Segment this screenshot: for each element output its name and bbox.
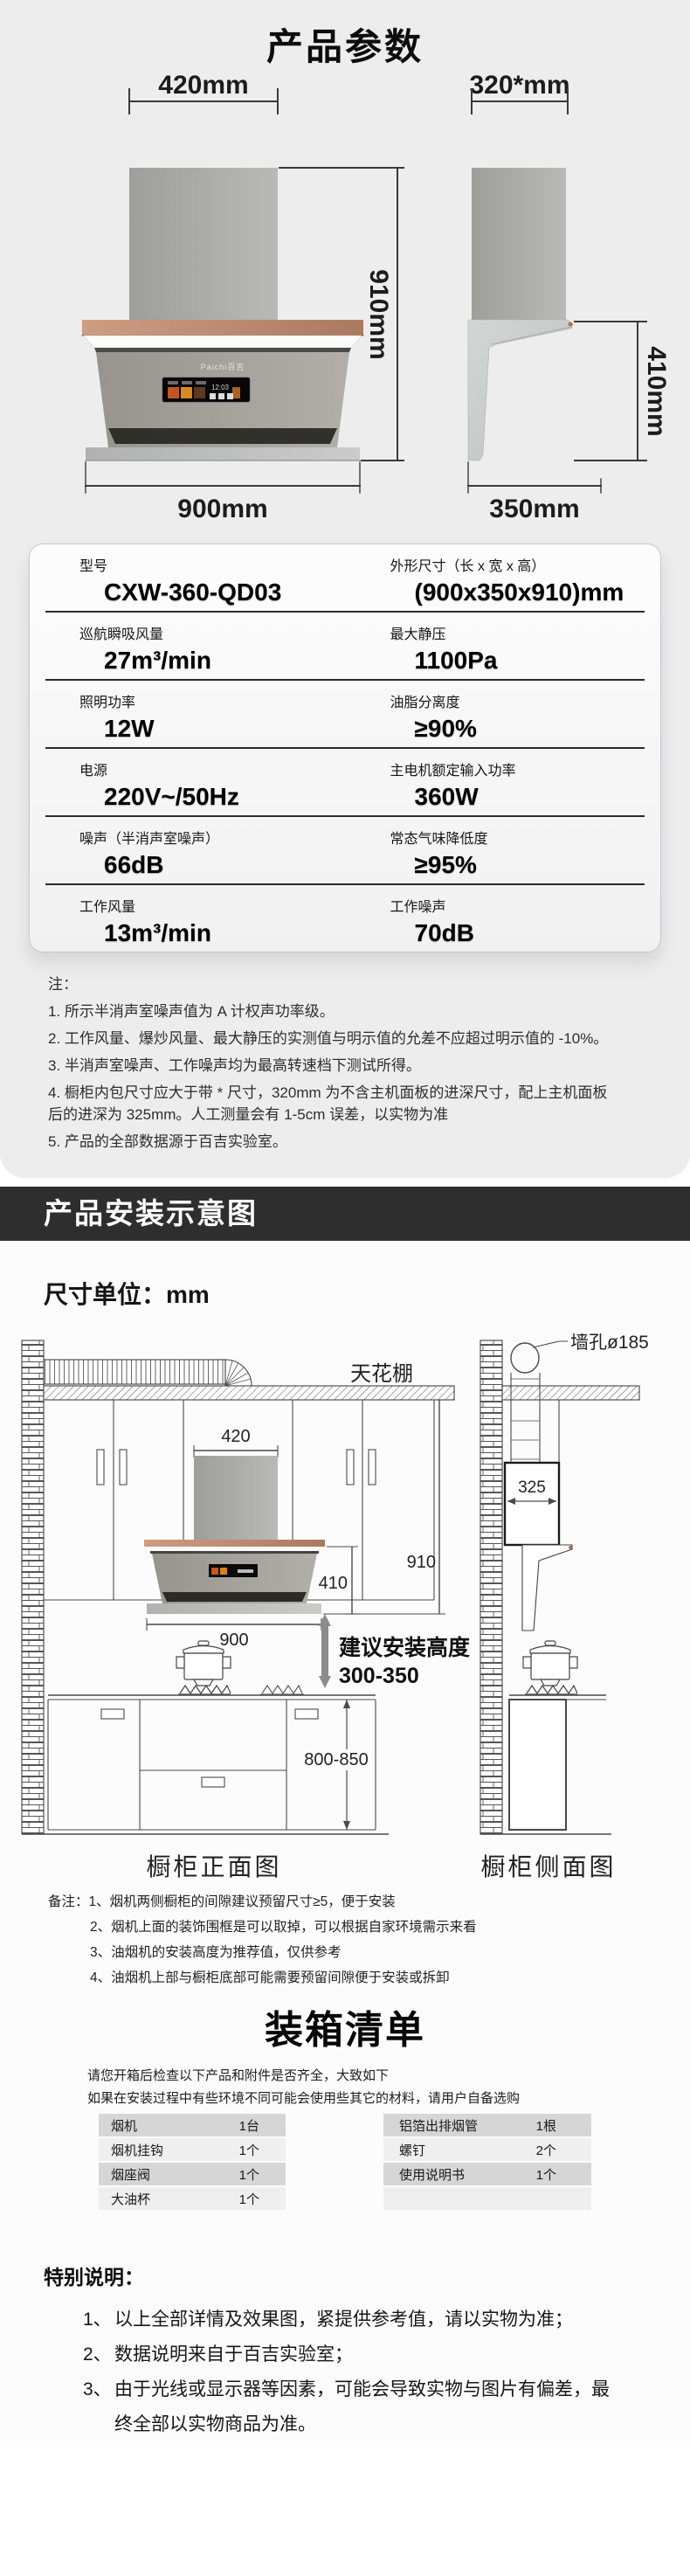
spec-value: 1100Pa <box>390 647 645 675</box>
special-notes-heading: 特别说明： <box>44 2261 690 2290</box>
packing-list-title: 装箱清单 <box>0 1998 690 2054</box>
remark-line: 2、烟机上面的装饰围框是可以取掉，可以根据自家环境需示来看 <box>48 1919 624 1935</box>
packing-table-left: 烟机1台 烟机挂钩1个 烟座阀1个 大油杯1个 <box>99 2114 286 2212</box>
spec-label: 噪声（半消声室噪声） <box>79 827 335 848</box>
suggest-height-arrow <box>319 1614 331 1688</box>
spec-label: 型号 <box>79 554 335 575</box>
brick-wall-side <box>480 1340 502 1834</box>
ceiling-label: 天花棚 <box>350 1362 413 1386</box>
packing-intro-line: 请您开箱后检查以下产品和附件是否齐全，大致如下 <box>87 2068 690 2084</box>
dim-800-850-label: 800-850 <box>304 1750 368 1769</box>
spec-row: 电源220V~/50Hz 主电机额定输入功率360W <box>45 749 645 817</box>
spec-notes: 注： 1. 所示半消声室噪声值为 A 计权声功率级。 2. 工作风量、爆炒风量、… <box>48 972 616 1158</box>
item-qty: 1个 <box>239 2190 259 2208</box>
special-note-num: 3、 <box>83 2372 114 2442</box>
item-name: 使用说明书 <box>399 2165 465 2184</box>
packing-row: 烟机1台 <box>99 2114 286 2136</box>
special-note-num: 2、 <box>83 2337 114 2372</box>
side-view-caption: 橱柜侧面图 <box>480 1853 616 1880</box>
packing-intro: 请您开箱后检查以下产品和附件是否齐全，大致如下 如果在安装过程中有些环境不同可能… <box>87 2068 690 2107</box>
spec-label: 电源 <box>79 758 335 779</box>
item-qty: 1个 <box>239 2165 259 2184</box>
packing-row: 烟座阀1个 <box>99 2163 286 2185</box>
spec-label: 工作风量 <box>79 895 335 916</box>
wood-edge-accent <box>569 322 573 327</box>
install-diagram: 天花棚 420 <box>0 1333 690 1888</box>
spec-value: 70dB <box>390 919 645 947</box>
item-name: 烟机 <box>111 2116 137 2135</box>
packing-intro-line: 如果在安装过程中有些环境不同可能会使用些其它的材料，请用户自备选购 <box>87 2091 690 2107</box>
special-note-text: 以上全部详情及效果图，紧提供参考值，请以实物为准； <box>114 2302 624 2337</box>
spec-label: 主电机额定输入功率 <box>390 758 645 779</box>
spec-row: 照明功率12W 油脂分离度≥90% <box>45 681 645 749</box>
notes-heading: 注： <box>48 972 616 994</box>
remark-line: 3、油烟机的安装高度为推荐值，仅供参考 <box>48 1944 624 1961</box>
dim-410-label: 410 <box>319 1574 348 1593</box>
brick-wall-left <box>22 1340 44 1834</box>
install-section-banner: 产品安装示意图 <box>0 1187 690 1241</box>
front-view-caption: 橱柜正面图 <box>146 1853 281 1880</box>
packing-row: 烟机挂钩1个 <box>99 2138 286 2161</box>
install-section: 尺寸单位：mm <box>0 1241 690 2442</box>
unit-label: 尺寸单位：mm <box>0 1241 690 1311</box>
remark-line: 4、油烟机上部与橱柜底部可能需要预留间隙便于安装或拆卸 <box>48 1970 624 1986</box>
item-qty: 1台 <box>239 2116 259 2135</box>
spec-value: CXW-360-QD03 <box>79 578 335 606</box>
ceiling-side <box>502 1386 639 1400</box>
packing-row <box>383 2187 591 2210</box>
packing-table-right: 铝箔出排烟管1根 螺钉2个 使用说明书1个 <box>383 2114 591 2212</box>
burner-side <box>525 1686 577 1694</box>
item-qty: 2个 <box>536 2141 556 2159</box>
product-detail-page: { "page": { "title": "产品参数" }, "colors":… <box>0 0 690 2576</box>
spec-value: 220V~/50Hz <box>79 783 335 811</box>
note-line: 1. 所示半消声室噪声值为 A 计权声功率级。 <box>48 1001 616 1022</box>
note-line: 3. 半消声室噪声、工作噪声均为最高转速档下测试所得。 <box>48 1055 616 1077</box>
hood-side-view: 320*mm 410mm 350mm <box>468 71 671 523</box>
item-name: 螺钉 <box>399 2141 425 2159</box>
special-note: 2、 数据说明来自于百吉实验室； <box>83 2337 624 2372</box>
burner-right <box>260 1686 304 1694</box>
burner-left <box>178 1686 231 1694</box>
special-note-num: 1、 <box>83 2302 114 2337</box>
item-name: 大油杯 <box>111 2190 150 2208</box>
hood-front-view: 420mm Paichi百吉 12: <box>82 71 404 523</box>
spec-label: 工作噪声 <box>390 895 645 916</box>
spec-value: ≥90% <box>390 715 645 743</box>
item-qty: 1个 <box>239 2141 259 2159</box>
item-qty: 1个 <box>536 2165 556 2184</box>
dim-910-label: 910 <box>407 1553 436 1572</box>
hood-vent-slot <box>108 428 337 444</box>
spec-value: 12W <box>79 715 335 743</box>
dim-420-label: 420 <box>221 1427 250 1446</box>
note-line: 2. 工作风量、爆炒风量、最大静压的实测值与明示值的允差不应超过明示值的 -10… <box>48 1028 616 1049</box>
spec-value: 360W <box>390 783 645 811</box>
spec-value: 13m³/min <box>79 919 335 947</box>
item-name: 烟座阀 <box>111 2165 150 2184</box>
dim-900-label: 900 <box>219 1631 248 1650</box>
item-name: 烟机挂钩 <box>111 2141 163 2159</box>
packing-row: 螺钉2个 <box>383 2138 591 2161</box>
pot-side <box>523 1641 577 1686</box>
cabinet-front-view: 天花棚 420 <box>22 1340 470 1880</box>
packing-tables: 烟机1台 烟机挂钩1个 烟座阀1个 大油杯1个 铝箔出排烟管1根 螺钉2个 使用… <box>0 2114 690 2212</box>
dim-900mm-label: 900mm <box>177 495 267 523</box>
dim-420mm-label: 420mm <box>158 71 248 100</box>
install-remarks: 备注：1、烟机两侧橱柜的间隙建议预留尺寸≥5，便于安装 2、烟机上面的装饰围框是… <box>48 1894 624 1986</box>
hood-brand-logo: Paichi百吉 <box>201 363 245 371</box>
exhaust-duct <box>44 1360 225 1384</box>
dim-325-label: 325 <box>518 1478 546 1497</box>
dim-350mm-label: 350mm <box>489 495 579 523</box>
item-qty: 1根 <box>536 2116 556 2135</box>
duct-channel <box>505 1463 559 1545</box>
dimension-diagram: 420mm Paichi百吉 12: <box>0 70 690 533</box>
cabinet-side-view: 墙孔ø185 325 橱柜侧面图 <box>480 1333 649 1880</box>
hood-wood-top <box>82 320 363 336</box>
packing-row: 大油杯1个 <box>99 2187 286 2210</box>
note-line: 4. 橱柜内包尺寸应大于带 * 尺寸，320mm 为不含主机面板的进深尺寸，配上… <box>48 1082 616 1125</box>
base-cabinet-side <box>509 1700 566 1830</box>
ceiling-front <box>44 1386 454 1400</box>
spec-row: 型号CXW-360-QD03 外形尺寸（长 x 宽 x 高）(900x350x9… <box>45 544 645 613</box>
spec-value: 27m³/min <box>79 647 335 675</box>
hood-light-strip <box>84 336 362 348</box>
spec-label: 最大静压 <box>390 622 645 643</box>
wall-hole <box>511 1343 539 1373</box>
hood-side-outline <box>522 1545 572 1631</box>
hood-display-screen: 12:03 <box>162 377 250 402</box>
packing-row: 使用说明书1个 <box>383 2163 591 2185</box>
spec-value: ≥95% <box>390 851 645 879</box>
special-notes-list: 1、 以上全部详情及效果图，紧提供参考值，请以实物为准； 2、 数据说明来自于百… <box>83 2302 624 2442</box>
hood-chimney <box>129 168 278 322</box>
remark-line: 备注：1、烟机两侧橱柜的间隙建议预留尺寸≥5，便于安装 <box>48 1894 624 1910</box>
spec-row: 巡航瞬吸风量27m³/min 最大静压1100Pa <box>45 613 645 681</box>
spec-label: 油脂分离度 <box>390 690 645 711</box>
item-name: 铝箔出排烟管 <box>399 2116 478 2135</box>
packing-row: 铝箔出排烟管1根 <box>383 2114 591 2136</box>
page-title: 产品参数 <box>0 17 690 71</box>
spec-label: 常态气味降低度 <box>390 827 645 848</box>
suggest-height-label: 建议安装高度 <box>339 1635 470 1660</box>
hood-in-diagram <box>144 1456 325 1614</box>
hood-side-profile <box>468 320 573 460</box>
dim-320mm-label: 320*mm <box>469 71 569 100</box>
special-note: 1、 以上全部详情及效果图，紧提供参考值，请以实物为准； <box>83 2302 624 2337</box>
special-note-text: 由于光线或显示器等因素，可能会导致实物与图片有偏差，最终全部以实物商品为准。 <box>114 2372 624 2442</box>
special-note: 3、 由于光线或显示器等因素，可能会导致实物与图片有偏差，最终全部以实物商品为准… <box>83 2372 624 2442</box>
dim-910mm-label: 910mm <box>364 269 393 359</box>
spec-row: 工作风量13m³/min 工作噪声70dB <box>45 885 645 952</box>
wall-hole-label: 墙孔ø185 <box>570 1333 649 1353</box>
spec-label: 照明功率 <box>79 690 335 711</box>
dim-410mm-label: 410mm <box>642 346 671 436</box>
spec-value: 66dB <box>79 851 335 879</box>
spec-row: 噪声（半消声室噪声）66dB 常态气味降低度≥95% <box>45 817 645 885</box>
spec-value: (900x350x910)mm <box>390 578 645 606</box>
spec-table: 型号CXW-360-QD03 外形尺寸（长 x 宽 x 高）(900x350x9… <box>29 544 661 952</box>
note-line: 5. 产品的全部数据源于百吉实验室。 <box>48 1131 616 1153</box>
spec-label: 巡航瞬吸风量 <box>79 622 335 643</box>
product-params-section: 产品参数 420mm <box>0 0 690 1178</box>
suggest-height-value: 300-350 <box>339 1664 419 1688</box>
hood-chimney-side <box>472 168 566 322</box>
hood-base <box>86 447 360 460</box>
special-note-text: 数据说明来自于百吉实验室； <box>114 2337 624 2372</box>
spec-label: 外形尺寸（长 x 宽 x 高） <box>390 554 645 575</box>
display-time: 12:03 <box>211 384 230 391</box>
